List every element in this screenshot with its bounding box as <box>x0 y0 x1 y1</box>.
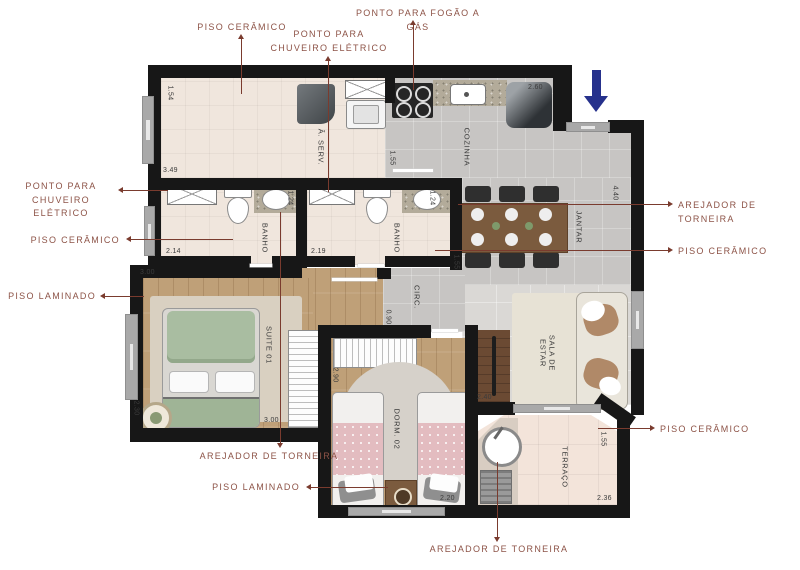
plate <box>471 208 484 221</box>
wall-dorm-top <box>331 325 431 338</box>
stove-burner <box>396 86 412 102</box>
leader-line <box>241 38 242 94</box>
wall-bath2-bottom <box>307 256 355 267</box>
plant-center <box>150 412 162 424</box>
room-label-banho2: BANHO <box>392 223 401 253</box>
dorm-bed1-blanket <box>333 423 383 475</box>
leader-arrow <box>118 187 123 193</box>
leader-arrow <box>325 56 331 61</box>
plate <box>539 208 552 221</box>
room-label-terraco: TERRAÇO <box>560 446 569 488</box>
door-indicator-kitchen <box>393 169 433 172</box>
dim-suite-w: 3.00 <box>264 417 279 424</box>
window-living <box>631 291 644 349</box>
suite-duvet <box>167 311 255 363</box>
dim-entrada-h: 4.40 <box>612 186 619 201</box>
dim-banho1-h: 1.24 <box>287 191 294 206</box>
tv-icon <box>492 336 496 396</box>
dining-chair <box>465 186 491 202</box>
callout-ponto-fogao: PONTO PARA FOGÃO A GÁS <box>350 7 486 34</box>
leader-line <box>122 190 168 191</box>
room-label-servico: Â. SERV. <box>316 129 325 165</box>
room-label-banho1: BANHO <box>260 223 269 253</box>
plate <box>505 233 518 246</box>
leader-line <box>598 428 650 429</box>
table-decor <box>525 222 533 230</box>
terrace-faucet <box>493 426 503 439</box>
leader-arrow <box>668 247 673 253</box>
dim-suite-h: 2.30 <box>133 401 140 416</box>
dim-servico-h: 1.54 <box>167 86 174 101</box>
nightstand-decor <box>394 488 412 506</box>
dorm-bed2-icon <box>417 392 469 510</box>
sink2-icon <box>413 189 441 210</box>
kitchen-faucet <box>464 92 469 97</box>
room-label-suite: SUITE 01 <box>264 326 273 364</box>
suite-headboard <box>163 397 259 428</box>
wall-living-terrace <box>465 402 515 415</box>
wall-bath1-bottom <box>161 256 251 267</box>
wall-top <box>148 65 572 78</box>
wall-bath2-bottom2 <box>385 256 450 267</box>
wall-bath1-bottom2 <box>272 256 296 267</box>
tv-rack-icon <box>478 330 510 402</box>
dining-chair <box>465 252 491 268</box>
room-label-cozinha: COZINHA <box>462 128 471 167</box>
leader-arrow <box>277 443 283 448</box>
stove-burner <box>415 102 431 118</box>
leader-line <box>497 462 498 538</box>
callout-arejador-right: AREJADOR DE TORNEIRA <box>678 199 798 226</box>
leader-line <box>328 60 329 192</box>
window-dorm <box>348 507 445 516</box>
leader-arrow <box>494 537 500 542</box>
entry-arrow-head <box>584 96 608 112</box>
laundry-cabinet-icon <box>345 80 389 99</box>
callout-arejador-banho: AREJADOR DE TORNEIRA <box>190 450 348 464</box>
suite-pillow <box>169 371 209 393</box>
floor-plan-canvas: Â. SERV. COZINHA BANHO BANHO JANTAR CIRC… <box>0 0 800 570</box>
room-label-circ: CIRC. <box>412 285 421 309</box>
dim-jantar-h: 1.55 <box>453 255 460 270</box>
leader-arrow <box>306 484 311 490</box>
callout-piso-ceramico-right: PISO CERÂMICO <box>678 245 788 259</box>
room-label-jantar: JANTAR <box>574 211 583 244</box>
room-label-dorm: DORM. 02 <box>392 408 401 449</box>
wall-right <box>631 120 644 415</box>
dim-servico-w: 3.49 <box>163 167 178 174</box>
dim-banho2-w: 2.19 <box>311 248 326 255</box>
wall-living-dorm <box>465 325 478 518</box>
washer-icon <box>297 84 335 124</box>
leader-line <box>280 212 281 444</box>
terrace-sliding-door <box>513 404 601 413</box>
wall-circ-stub <box>377 268 391 279</box>
window-bath1 <box>144 206 155 256</box>
callout-piso-ceramico-left: PISO CERÂMICO <box>28 234 120 248</box>
door-indicator-bath2 <box>358 264 384 267</box>
leader-arrow <box>238 34 244 39</box>
wall-dorm-left <box>318 325 331 518</box>
suite-pillow <box>215 371 255 393</box>
floor-circulation <box>383 268 465 332</box>
dorm-bed2-blanket <box>418 423 468 475</box>
terrace-sink-icon <box>482 427 522 467</box>
sofa-icon <box>576 292 628 410</box>
dim-dorm-h: 2.90 <box>332 368 339 383</box>
leader-line <box>310 487 388 488</box>
wall-entry-stub <box>608 120 633 133</box>
plate <box>505 208 518 221</box>
callout-arejador-terraco: AREJADOR DE TORNEIRA <box>420 543 578 557</box>
dim-cozinha-door: 1.55 <box>389 151 396 166</box>
suite-bed-icon <box>162 308 260 428</box>
window-suite <box>125 314 138 400</box>
dim-circ-w: 0.90 <box>385 310 392 325</box>
wall-terrace-bottom <box>468 505 630 518</box>
callout-piso-laminado-left: PISO LAMINADO <box>8 290 96 304</box>
dim-terraco-h: 1.55 <box>600 432 607 447</box>
leader-arrow <box>100 293 105 299</box>
leader-arrow <box>126 236 131 242</box>
window-laundry <box>142 96 154 164</box>
leader-line <box>130 239 233 240</box>
stove-burner <box>415 86 431 102</box>
dim-cozinha-w: 2.60 <box>528 84 543 91</box>
callout-ponto-chuveiro-left: PONTO PARA CHUVEIRO ELÉTRICO <box>6 180 116 221</box>
dim-terraco-w: 2.36 <box>597 495 612 502</box>
dim-rack-w: 2.40 <box>477 394 492 401</box>
dining-chair <box>533 186 559 202</box>
leader-arrow <box>668 201 673 207</box>
dining-chair <box>499 186 525 202</box>
dining-chair <box>499 252 525 268</box>
entry-door <box>566 122 610 132</box>
room-label-sala: SALA DE ESTAR <box>538 335 557 371</box>
door-indicator-bath1 <box>250 264 272 267</box>
dim-banho1-w: 2.14 <box>166 248 181 255</box>
leader-line <box>458 204 668 205</box>
wall-suite-bottom <box>130 428 331 442</box>
laundry-tank-basin <box>353 105 379 124</box>
callout-piso-laminado-dorm: PISO LAMINADO <box>198 481 300 495</box>
leader-arrow <box>650 425 655 431</box>
laundry-tank-icon <box>346 100 386 129</box>
kitchen-sink-icon <box>450 84 486 105</box>
dim-suite-w-top: 3.00 <box>140 269 155 276</box>
door-indicator-circ <box>332 278 377 281</box>
leader-line <box>413 24 414 90</box>
plate <box>539 233 552 246</box>
wall-bath-divider <box>296 178 307 268</box>
door-indicator-dorm <box>432 329 458 332</box>
leader-arrow <box>410 20 416 25</box>
leader-line <box>435 250 668 251</box>
dim-dorm-w: 2.20 <box>440 495 455 502</box>
leader-line <box>104 296 144 297</box>
floor-entry <box>553 131 631 178</box>
stove-burner <box>396 102 412 118</box>
dining-chair <box>533 252 559 268</box>
callout-piso-ceramico-terrace: PISO CERÂMICO <box>660 423 770 437</box>
dining-table-icon <box>458 203 568 253</box>
wall-kitchen-stub <box>385 78 395 103</box>
terrace-grill-icon <box>480 470 512 504</box>
dim-banho2-h: 1.24 <box>429 191 436 206</box>
entry-arrow-icon <box>592 70 601 96</box>
table-decor <box>492 222 500 230</box>
plate <box>471 233 484 246</box>
wall-terrace-right <box>617 420 630 512</box>
